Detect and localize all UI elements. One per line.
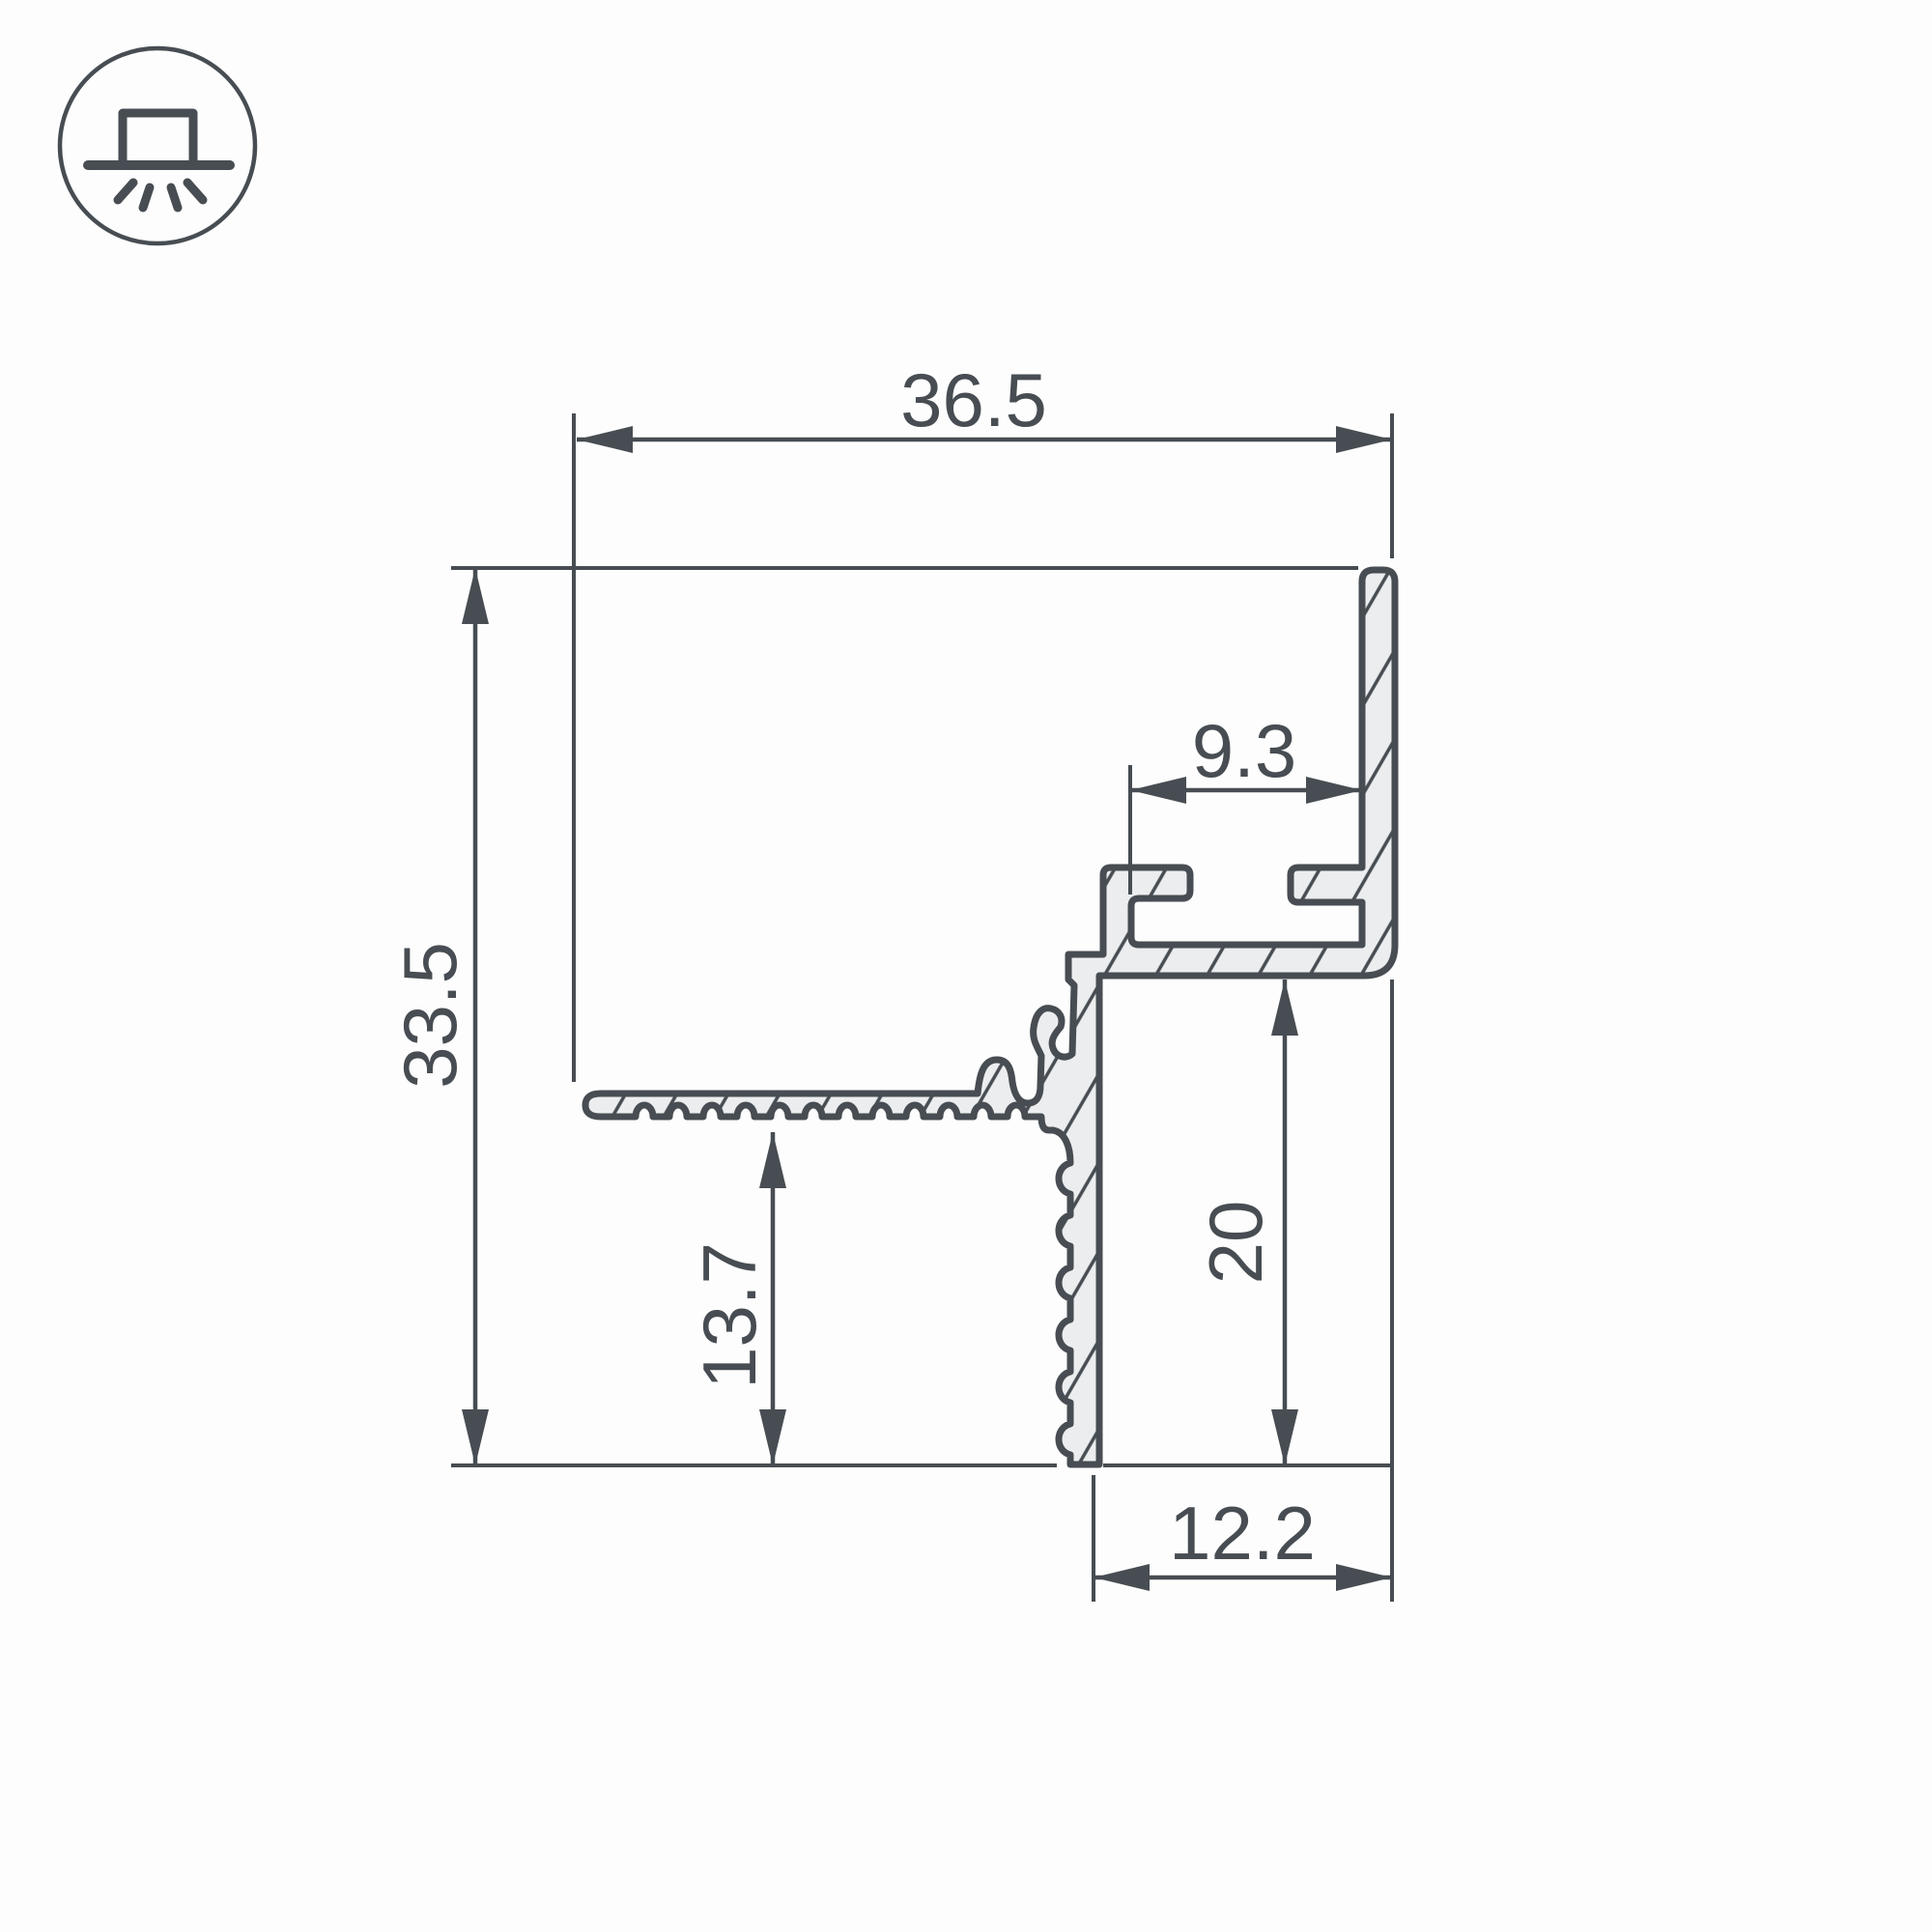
technical-drawing-canvas: 36.5 33.5 9.3 20 13.7 12.2 — [0, 0, 1932, 1932]
dim-flange-offset-label: 13.7 — [687, 1242, 772, 1389]
dim-arrow-left — [1094, 1564, 1150, 1591]
dim-overall-height-label: 33.5 — [387, 942, 472, 1089]
icon-lamp-box — [123, 113, 193, 168]
dim-arrow-up — [759, 1132, 786, 1188]
dim-arrow-right — [1306, 777, 1362, 804]
dim-slot-width-label: 9.3 — [1192, 708, 1296, 793]
dim-arrow-down — [759, 1409, 786, 1465]
dim-arrow-right — [1336, 426, 1392, 453]
dim-arrow-up — [1271, 980, 1298, 1036]
dim-overall-width-label: 36.5 — [900, 357, 1047, 442]
recessed-ceiling-light-icon — [60, 48, 255, 243]
dim-arrow-right — [1336, 1564, 1392, 1591]
dim-arrow-left — [1130, 777, 1186, 804]
dim-arrow-down — [1271, 1409, 1298, 1465]
profile-dimension-drawing: 36.5 33.5 9.3 20 13.7 12.2 — [0, 0, 1932, 1932]
dim-overall-height — [451, 568, 1392, 1465]
dim-arrow-up — [462, 568, 489, 624]
dim-wall-height-label: 20 — [1193, 1201, 1278, 1285]
icon-light-rays — [118, 183, 203, 208]
dim-foot-width-label: 12.2 — [1169, 1491, 1316, 1576]
icon-circle — [60, 48, 255, 243]
dim-arrow-left — [577, 426, 633, 453]
dim-arrow-down — [462, 1409, 489, 1465]
